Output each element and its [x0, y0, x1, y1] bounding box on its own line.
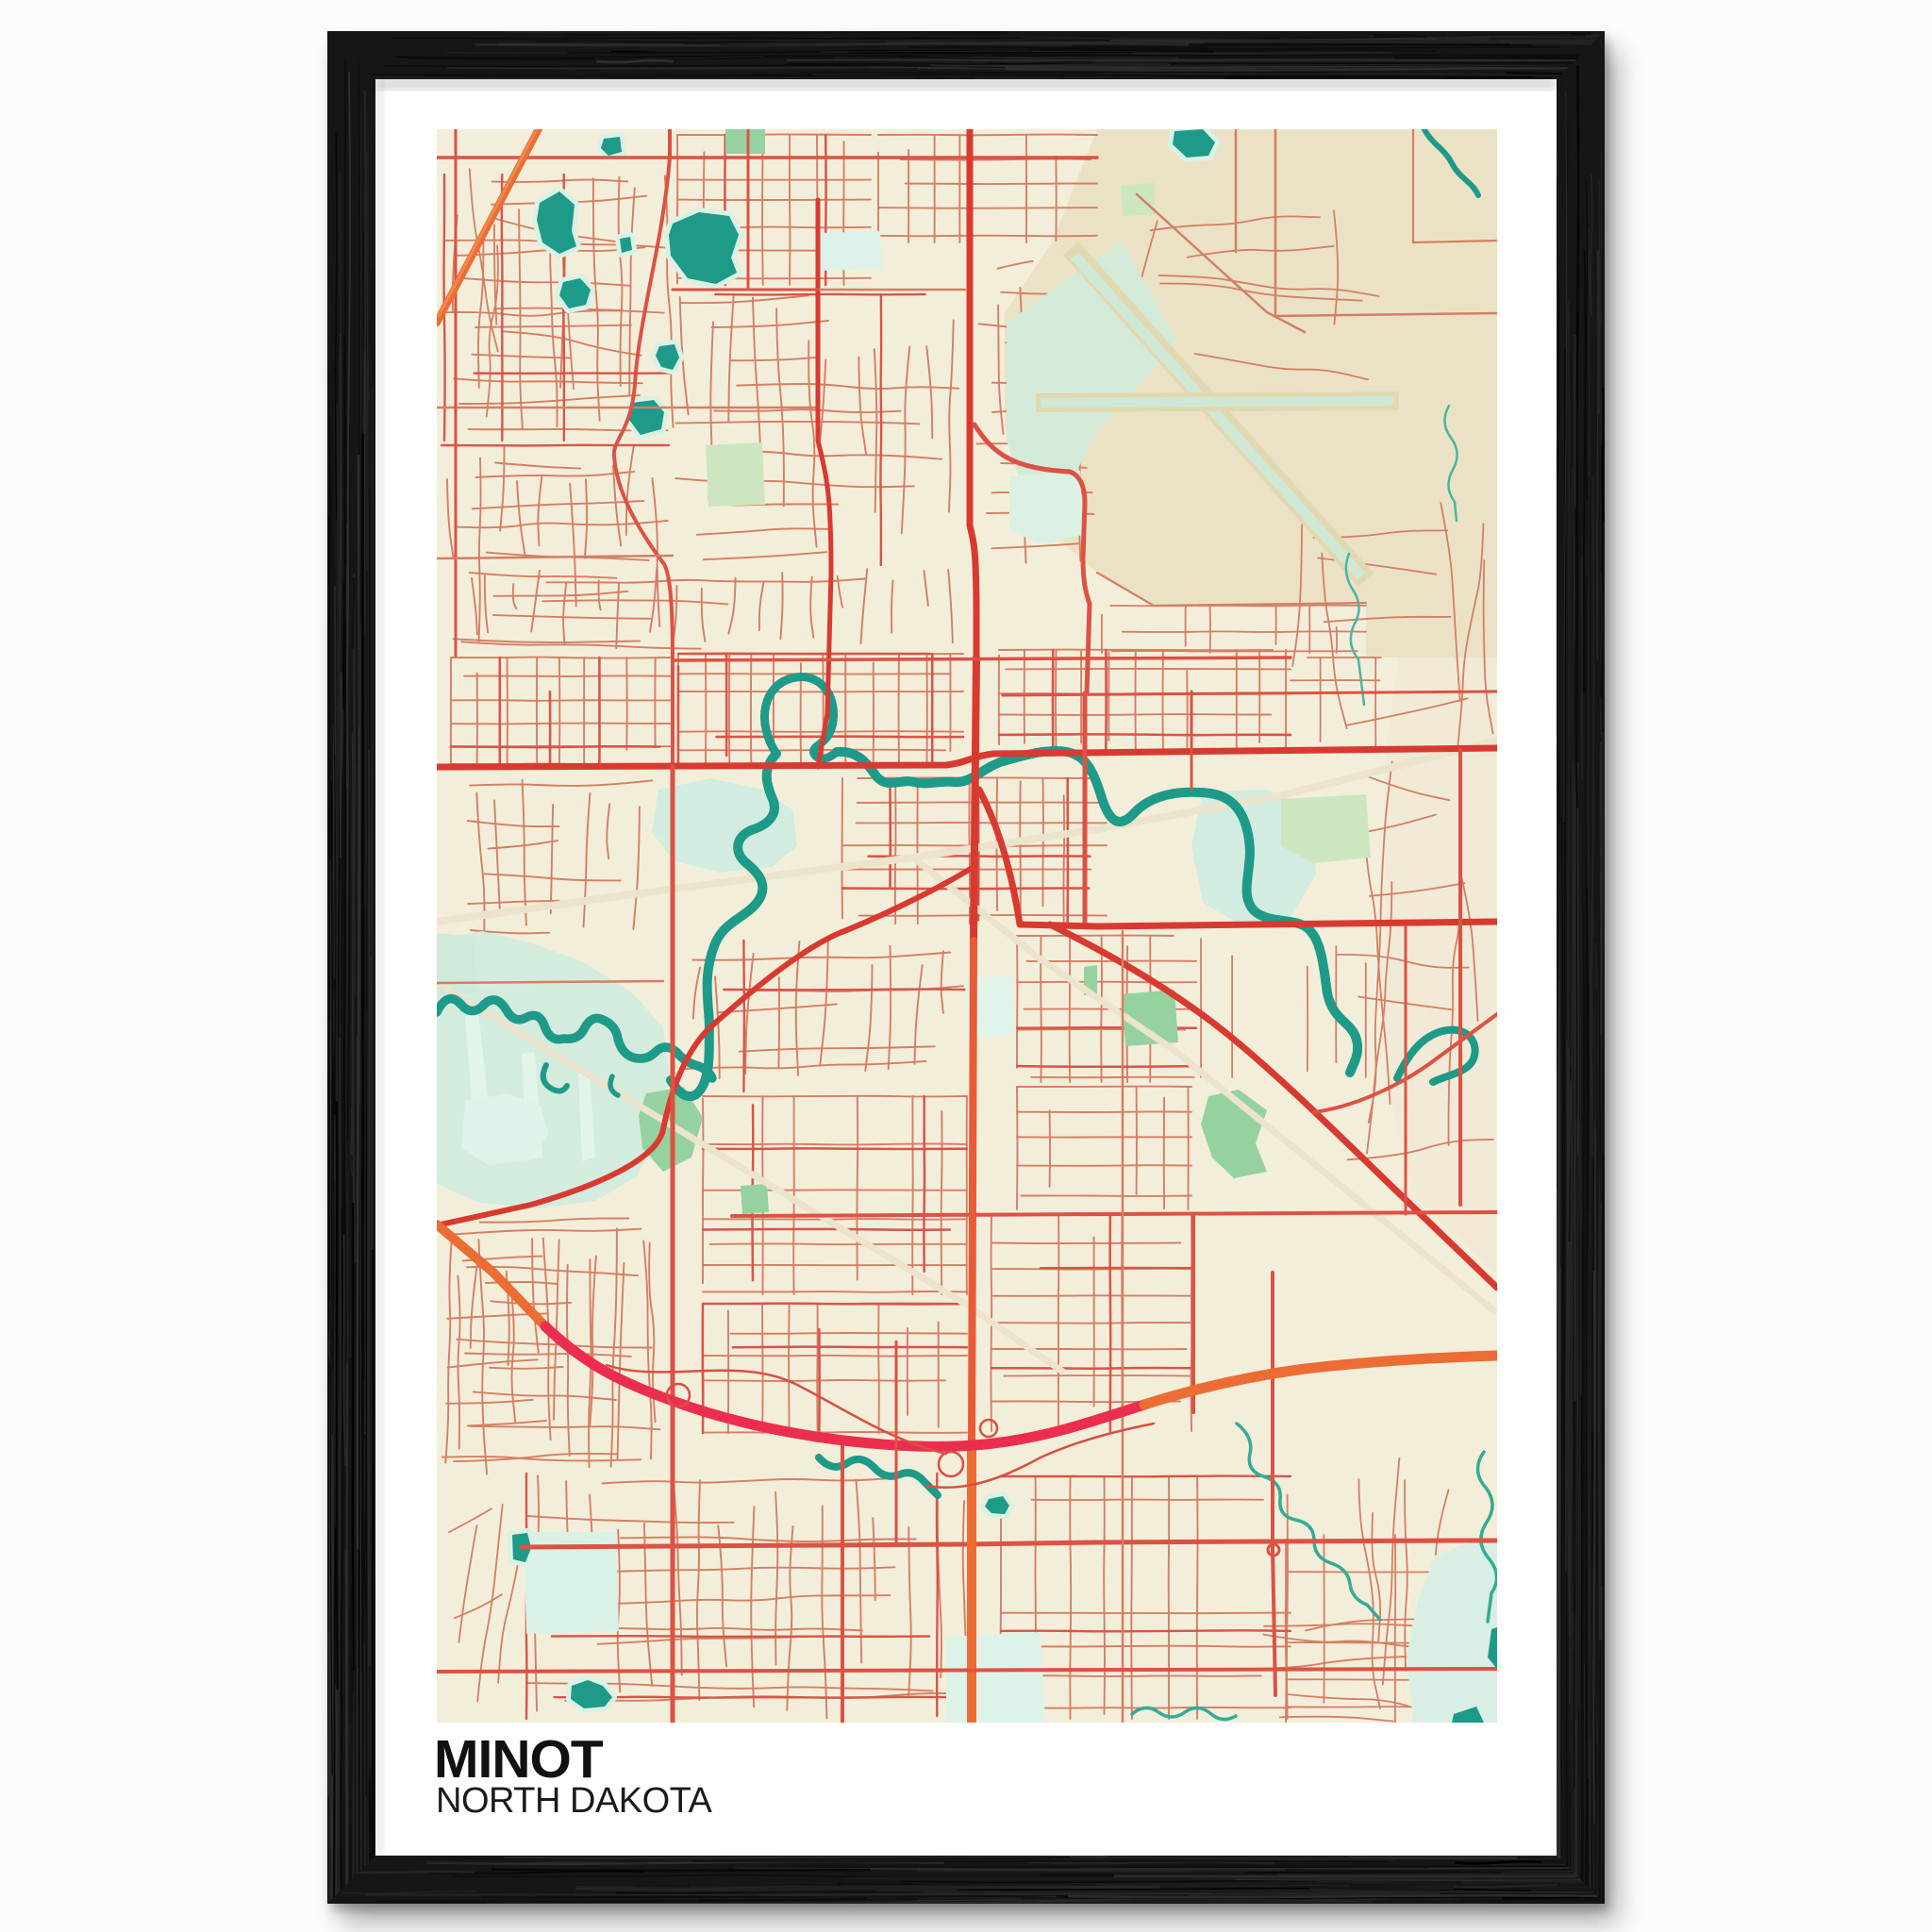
svg-text:NORTH DAKOTA: NORTH DAKOTA: [436, 1781, 713, 1821]
